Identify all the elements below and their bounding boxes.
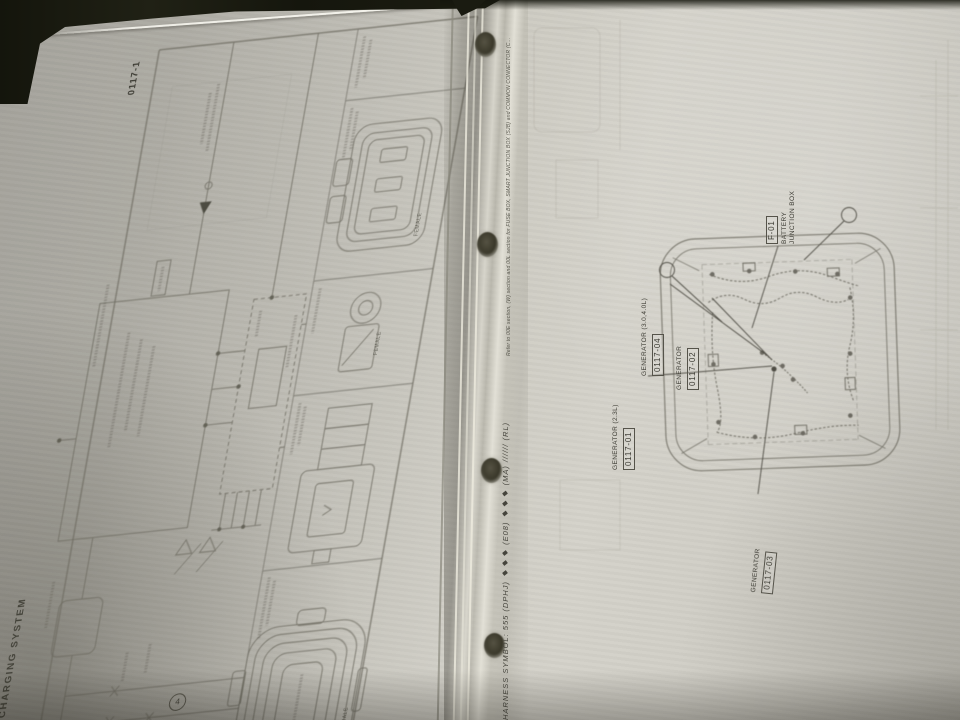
right-page-component-location: F-01 BATTERY JUNCTION BOX GENERATOR (3.0… [0, 0, 960, 720]
harness-symbol-legend: HARNESS SYMBOL: 555 (DPHJ) ◆◆◆ (E08) ◆◆◆… [501, 338, 510, 720]
circle-callout [842, 208, 857, 223]
background-top-edge [440, 0, 960, 10]
service-manual-binder-photo: 0117-1 CHARGING SYSTEM FEMALE FEMALE FEM… [0, 0, 960, 720]
reference-note: Refer to 00E section, (W) section and 00… [506, 8, 512, 356]
component-code: F-01 [766, 216, 778, 244]
component-label: GENERATOR (3.0,4.0L) [641, 298, 649, 376]
diagram-reference-code: 0117-04 [652, 334, 664, 376]
callout-battery-junction-box: F-01 BATTERY JUNCTION BOX [766, 138, 797, 244]
diagram-reference-code: 0117-02 [687, 348, 699, 390]
component-label: BATTERY JUNCTION BOX [781, 190, 797, 244]
callout-generator-3040l: GENERATOR (3.0,4.0L) 0117-04 [641, 280, 664, 376]
component-label: GENERATOR (2.3L) [612, 404, 620, 470]
component-label: GENERATOR [676, 346, 684, 390]
callout-generator-23l: GENERATOR (2.3L) 0117-01 [612, 372, 635, 470]
circle-callout [660, 263, 675, 278]
engine-compartment-drawing [500, 0, 960, 720]
wiring-harness-routing [705, 259, 863, 441]
diagram-reference-code: 0117-01 [623, 428, 635, 470]
callout-generator-02: GENERATOR 0117-02 [676, 298, 699, 390]
